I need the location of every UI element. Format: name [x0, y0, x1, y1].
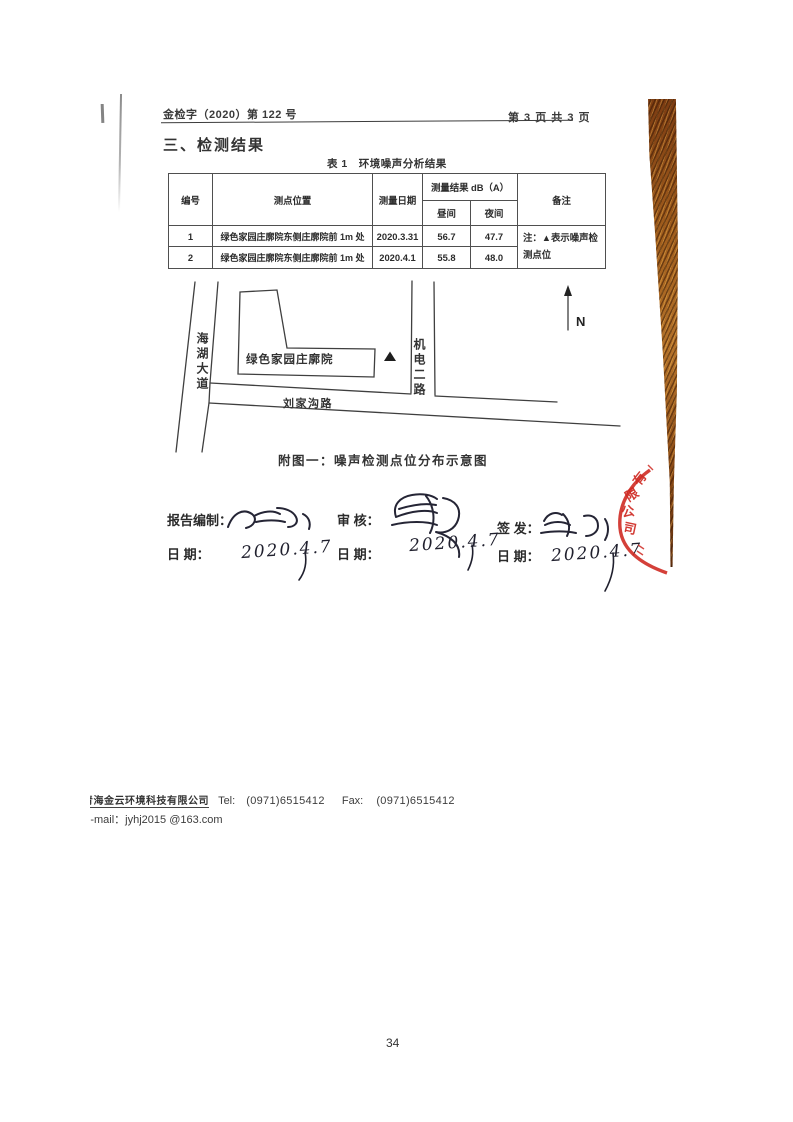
col-header-day: 昼间	[423, 201, 471, 226]
preparer-signature-ink	[228, 508, 310, 529]
issuer-signature-ink	[541, 513, 608, 540]
north-arrow-head	[564, 285, 572, 296]
col-header-result-group: 测量结果 dB（A）	[423, 174, 518, 201]
red-company-seal: 有 限 公 司	[600, 455, 690, 585]
road-liujiagou-north-line-east	[435, 396, 557, 402]
cell-date: 2020.4.1	[373, 247, 423, 269]
cell-no: 2	[169, 247, 213, 269]
seal-char: 公	[620, 503, 635, 520]
cell-location: 绿色家园庄廓院东侧庄廓院前 1m 处	[213, 247, 373, 269]
footer-email: E-mail：jyhj2015 @163.com	[90, 811, 520, 829]
figure-caption: 附图一：噪声检测点位分布示意图	[278, 450, 488, 469]
table-row: 1 绿色家园庄廓院东侧庄廓院前 1m 处 2020.3.31 56.7 47.7…	[169, 226, 606, 247]
col-header-no: 编号	[169, 174, 213, 226]
paper-edge-mark	[101, 104, 104, 123]
section-title: 三、检测结果	[163, 134, 265, 155]
road-liujiagou-north-line-west	[210, 383, 411, 394]
road-label-liujiagou: 刘家沟路	[283, 395, 333, 411]
road-liujiagou-south-line	[209, 403, 620, 426]
road-jidian-east-line	[434, 282, 435, 395]
road-label-haihu: 海湖大道	[196, 332, 208, 392]
document-number: 金检字（2020）第 122 号	[163, 106, 297, 122]
building-label: 绿色家园庄廓院	[246, 351, 334, 367]
footer-block: 青海金云环境科技有限公司 Tel: (0971)6515412 Fax: (09…	[90, 792, 520, 830]
footer-tel-number: (0971)6515412	[246, 795, 325, 807]
page-indicator: 第 3 页 共 3 页	[508, 109, 591, 125]
date-1-seven-tail-ink	[299, 552, 306, 580]
cell-night-value: 48.0	[471, 247, 518, 269]
footer-fax-number: (0971)6515412	[376, 795, 455, 807]
col-header-location: 测点位置	[213, 174, 373, 226]
col-header-remark: 备注	[518, 174, 606, 226]
seal-small-marks	[637, 545, 644, 555]
road-haihu-west-line	[176, 282, 195, 452]
cell-night-value: 47.7	[471, 226, 518, 247]
page-number: 34	[386, 1036, 399, 1050]
cell-day-value: 55.8	[423, 247, 471, 269]
reviewer-signature-ink	[392, 494, 459, 557]
cell-remark-note: 注：▲表示噪声检测点位	[518, 226, 606, 269]
cell-day-value: 56.7	[423, 226, 471, 247]
north-label: N	[576, 314, 585, 329]
col-header-night: 夜间	[471, 201, 518, 226]
noise-point-marker-icon	[384, 352, 396, 362]
site-sketch-diagram	[165, 275, 645, 470]
road-label-jidian: 机电二路	[413, 338, 425, 398]
cell-location: 绿色家园庄廓院东侧庄廓院前 1m 处	[213, 226, 373, 247]
cell-no: 1	[169, 226, 213, 247]
paper-crease-line	[118, 94, 122, 212]
scanned-report-page: 金检字（2020）第 122 号 第 3 页 共 3 页 三、检测结果 表 1 …	[0, 0, 793, 1122]
footer-company-name: 青海金云环境科技有限公司	[90, 796, 209, 808]
date-2-seven-tail-ink	[468, 545, 473, 570]
handwritten-signatures	[160, 490, 630, 600]
footer-fax-label: Fax:	[342, 795, 363, 807]
footer-tel-label: Tel:	[218, 795, 235, 807]
col-header-date: 测量日期	[373, 174, 423, 226]
noise-results-table: 编号 测点位置 测量日期 测量结果 dB（A） 备注 昼间 夜间 1 绿色家园庄…	[168, 173, 606, 269]
seal-char: 司	[622, 520, 638, 537]
cell-date: 2020.3.31	[373, 226, 423, 247]
table-caption: 表 1 环境噪声分析结果	[327, 156, 447, 171]
